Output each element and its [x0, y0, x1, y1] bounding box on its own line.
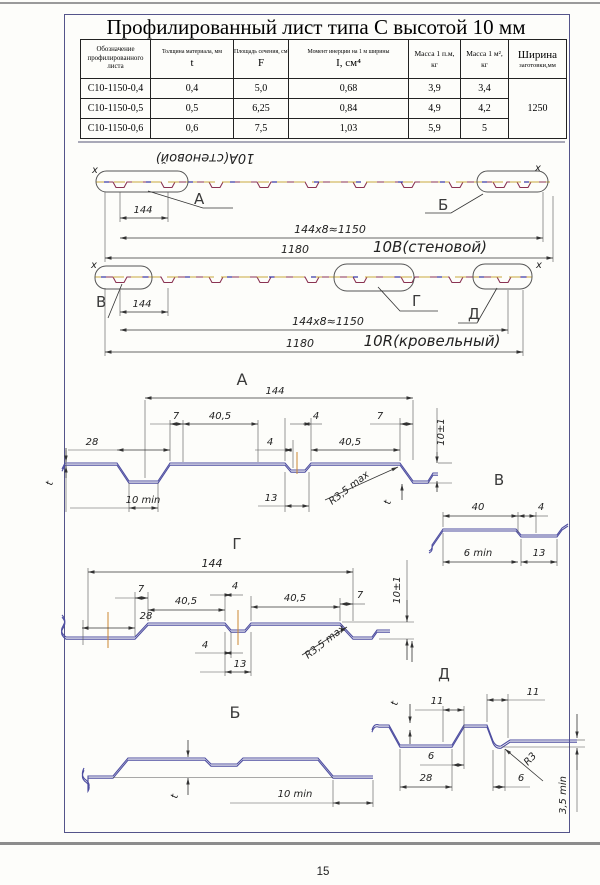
dim-arrow — [446, 785, 453, 788]
dim-arrow — [170, 422, 177, 425]
dim-arrow — [129, 506, 136, 509]
table-row: С10-1150-0,4 0,4 5,0 0,68 3,9 3,4 1250 — [81, 79, 567, 99]
cell-mass-m2: 5 — [461, 119, 509, 139]
dim-arrow — [340, 602, 347, 605]
dim-arrow — [512, 514, 519, 517]
profile-name-wall: 10В(стеновой) — [373, 238, 487, 256]
col-thickness: Толщина материала, ммt — [151, 40, 234, 79]
dim-arrow — [452, 763, 459, 766]
dim-arrow — [458, 708, 465, 711]
detail-D-drawing: Д t 11 11 6 28 6 R3 3,5 min — [365, 660, 590, 830]
extension-lines — [66, 400, 452, 512]
detail-title-D: Д — [438, 665, 450, 683]
overview-wall-drawing: 10А(стеновой) x x А Б 144 144x8≈1150 118… — [60, 145, 570, 262]
detail-title-A: А — [237, 370, 248, 389]
dim-13: 13 — [533, 548, 546, 559]
dim-height: 10±1 — [436, 418, 447, 445]
dim-arrow — [408, 730, 411, 737]
detail-title-G: Г — [232, 535, 241, 553]
dim-arrow — [551, 560, 558, 563]
dim-arrow — [391, 467, 398, 471]
dim-40-5: 40,5 — [175, 596, 197, 607]
detail-label-G: Г — [412, 292, 421, 310]
dim-arrow — [502, 698, 509, 701]
dim-arrow — [177, 422, 184, 425]
spec-table: Обозначение профилированного листа Толщи… — [80, 39, 567, 139]
dim-arrow — [493, 785, 500, 788]
dim-arrow — [400, 785, 407, 788]
dim-pitch: 144x8≈1150 — [292, 315, 364, 328]
detail-label-A: А — [194, 190, 205, 208]
cell-F: 5,0 — [234, 79, 289, 99]
dim-arrow — [186, 751, 189, 758]
dim-arrow — [530, 514, 537, 517]
dim-arrow — [487, 698, 494, 701]
dim-arrow — [135, 596, 142, 599]
dim-13: 13 — [234, 659, 247, 670]
axis-x-right: x — [534, 163, 541, 174]
dim-arrow — [64, 456, 67, 463]
dim-arrow — [408, 717, 411, 724]
dim-arrow — [303, 504, 310, 507]
dim-arrow — [512, 560, 519, 563]
dim-arrow — [443, 708, 450, 711]
dim-arrow — [129, 626, 136, 629]
axis-x-right: x — [535, 260, 542, 271]
dim-arrow — [407, 422, 414, 425]
dim-arrow — [120, 236, 127, 239]
detail-label-D: Д — [468, 305, 480, 323]
dim-arrow — [225, 670, 232, 673]
dim-arrow — [251, 605, 258, 608]
extension-lines — [83, 560, 414, 676]
col-mass-m2: Масса 1 м²,кг — [461, 40, 509, 79]
dim-144: 144 — [133, 205, 152, 216]
dim-13: 13 — [265, 493, 278, 504]
cell-I: 0,68 — [289, 79, 409, 99]
cell-mass-lm: 5,9 — [409, 119, 461, 139]
dim-35min: 3,5 min — [558, 776, 569, 814]
dim-arrow — [245, 670, 252, 673]
dim-arrow — [347, 570, 354, 573]
dim-7: 7 — [357, 590, 364, 601]
detail-B-drawing: Б t 10 min — [70, 700, 395, 820]
dim-1180: 1180 — [286, 337, 314, 350]
cell-mass-lm: 4,9 — [409, 99, 461, 119]
dim-144: 144 — [265, 386, 284, 397]
dim-thickness: t — [44, 479, 56, 487]
dim-arrow — [164, 448, 171, 451]
wall-profile — [96, 182, 550, 188]
dim-arrow — [405, 616, 408, 623]
dim-arrow — [407, 396, 414, 399]
dim-arrow — [334, 605, 341, 608]
dim-arrow — [517, 350, 524, 353]
col-area: Площадь сечения, см²F — [234, 40, 289, 79]
dim-4: 4 — [232, 581, 238, 592]
section-profile-B — [82, 758, 373, 791]
dim-4: 4 — [267, 437, 273, 448]
dim-28: 28 — [420, 773, 433, 784]
dim-arrow — [64, 466, 67, 473]
detail-A-drawing: А 144 7 40,5 4 7 28 4 40,5 10 min 13 R3,… — [40, 372, 460, 525]
page-top-edge — [0, 2, 600, 4]
cell-mass-m2: 3,4 — [461, 79, 509, 99]
dim-arrow — [518, 514, 525, 517]
dim-7: 7 — [377, 411, 384, 422]
dim-6: 6 — [428, 751, 434, 762]
axis-x-left: x — [91, 165, 98, 176]
dim-arrow — [435, 457, 438, 464]
dim-arrow — [219, 608, 226, 611]
dim-arrow — [186, 778, 189, 785]
cell-t: 0,6 — [151, 119, 234, 139]
dim-6min: 6 min — [464, 548, 492, 559]
dim-28: 28 — [140, 611, 153, 622]
cell-mass-lm: 3,9 — [409, 79, 461, 99]
dim-11: 11 — [431, 696, 444, 707]
dim-arrow — [145, 396, 152, 399]
dim-arrow — [105, 256, 112, 259]
dim-144: 144 — [202, 557, 223, 570]
cell-designation: С10-1150-0,4 — [81, 79, 151, 99]
dim-arrow — [443, 514, 450, 517]
col-mass-lm: Масса 1 п.м,кг — [409, 40, 461, 79]
detail-label-B: Б — [438, 196, 448, 214]
dim-arrow — [183, 422, 190, 425]
dim-arrow — [443, 560, 450, 563]
dim-1180: 1180 — [281, 243, 309, 256]
detail-title-V: В — [494, 471, 504, 489]
cell-t: 0,5 — [151, 99, 234, 119]
cell-F: 7,5 — [234, 119, 289, 139]
cell-blank-width: 1250 — [509, 79, 567, 139]
dim-pitch: 144x8≈1150 — [294, 223, 366, 236]
dim-thickness: t — [389, 699, 401, 707]
dim-10min: 10 min — [278, 789, 313, 800]
section-profile-A — [62, 452, 438, 483]
dim-arrow — [120, 328, 127, 331]
dim-4: 4 — [538, 502, 544, 513]
dim-arrow — [405, 639, 408, 646]
dim-arrow — [152, 506, 159, 509]
dim-arrow — [394, 448, 401, 451]
cell-designation: С10-1150-0,6 — [81, 119, 151, 139]
section-profile-V — [429, 524, 568, 553]
dim-7: 7 — [138, 584, 145, 595]
dim-arrow — [400, 422, 407, 425]
page-title: Профилированный лист типа С высотой 10 м… — [70, 15, 562, 40]
dim-arrow — [547, 256, 554, 259]
roof-profile — [95, 277, 532, 283]
cell-mass-m2: 4,2 — [461, 99, 509, 119]
col-designation: Обозначение профилированного листа — [81, 40, 151, 79]
dim-10min: 10 min — [126, 495, 161, 506]
dim-7: 7 — [173, 411, 180, 422]
dim-40: 40 — [472, 502, 485, 513]
dim-6: 6 — [518, 773, 524, 784]
cell-I: 0,84 — [289, 99, 409, 119]
cell-t: 0,4 — [151, 79, 234, 99]
detail-title-B: Б — [230, 703, 241, 722]
dim-arrow — [311, 448, 318, 451]
dim-radius: R3,5 max — [303, 623, 348, 661]
dim-arrow — [537, 236, 544, 239]
cell-designation: С10-1150-0,5 — [81, 99, 151, 119]
dim-thickness: t — [169, 792, 181, 800]
dim-arrow — [142, 596, 149, 599]
dim-arrow — [105, 350, 112, 353]
dim-arrow — [575, 732, 578, 739]
axis-x-left: x — [90, 260, 97, 271]
dim-11: 11 — [527, 687, 540, 698]
dim-arrow — [347, 602, 354, 605]
page-bottom-edge — [0, 842, 600, 845]
dim-arrow — [88, 570, 95, 573]
dim-height: 10±1 — [392, 576, 403, 603]
dim-40-5: 40,5 — [284, 593, 306, 604]
dim-arrow — [162, 216, 169, 219]
dim-40-5: 40,5 — [339, 437, 361, 448]
cell-F: 6,25 — [234, 99, 289, 119]
dim-radius: R3,5 max — [327, 469, 372, 507]
dim-144: 144 — [132, 299, 151, 310]
dim-arrow — [117, 448, 124, 451]
dim-arrow — [521, 560, 528, 563]
scan-fold-line — [78, 141, 565, 143]
dim-arrow — [410, 641, 413, 648]
dim-28: 28 — [86, 437, 99, 448]
dim-4: 4 — [313, 411, 319, 422]
dim-arrow — [575, 748, 578, 755]
profile-name-roof: 10R(кровельный) — [364, 332, 501, 350]
section-profile-D — [372, 725, 577, 749]
dim-arrow — [120, 310, 127, 313]
dim-arrow — [252, 422, 259, 425]
dim-arrow — [162, 310, 169, 313]
dim-arrow — [333, 801, 340, 804]
dim-arrow — [502, 328, 509, 331]
table-header-row: Обозначение профилированного листа Толщи… — [81, 40, 567, 79]
cell-I: 1,03 — [289, 119, 409, 139]
dim-arrow — [285, 504, 292, 507]
overview-roof-drawing: x x В Г Д 144 144x8≈1150 1180 10R(кровел… — [60, 262, 570, 372]
detail-V-drawing: В 40 4 6 min 13 — [425, 470, 580, 570]
flipped-profile-name: 10А(стеновой) — [156, 150, 255, 165]
dim-arrow — [120, 216, 127, 219]
dim-arrow — [400, 484, 403, 491]
dim-40-5: 40,5 — [209, 411, 231, 422]
table-row: С10-1150-0,6 0,6 7,5 1,03 5,9 5 — [81, 119, 567, 139]
dim-thickness: t — [382, 498, 394, 506]
col-width: Шириназаготовки,мм — [509, 40, 567, 79]
table-row: С10-1150-0,5 0,5 6,25 0,84 4,9 4,2 — [81, 99, 567, 119]
dim-4: 4 — [202, 640, 208, 651]
page-number: 15 — [0, 866, 600, 878]
col-inertia: Момент инерции на 1 м шириныI, см⁴ — [289, 40, 409, 79]
